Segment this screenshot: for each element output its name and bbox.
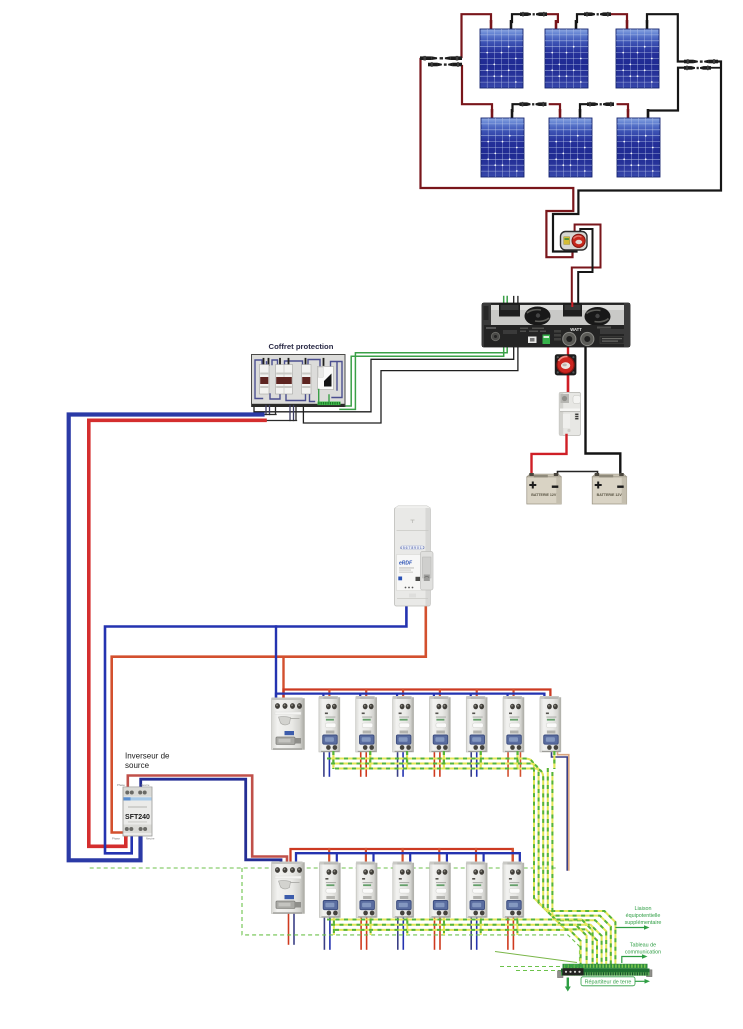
- svg-text:source: source: [125, 761, 150, 770]
- svg-text:4 5 6 7 8 9 0 1 2: 4 5 6 7 8 9 0 1 2: [400, 546, 425, 550]
- svg-text:Tableau de: Tableau de: [630, 943, 656, 949]
- svg-text:Coffret protection: Coffret protection: [269, 342, 334, 351]
- svg-text:supplémentaire: supplémentaire: [625, 920, 662, 926]
- svg-text:Répartiteur de terre: Répartiteur de terre: [585, 980, 632, 986]
- svg-text:Neutre: Neutre: [146, 837, 155, 841]
- svg-text:Neutre: Neutre: [141, 783, 150, 787]
- svg-text:Phase: Phase: [117, 783, 125, 787]
- svg-text:BATTERIE 12V: BATTERIE 12V: [531, 493, 557, 497]
- svg-text:équipotentielle: équipotentielle: [626, 913, 661, 919]
- svg-text:Inverseur de: Inverseur de: [125, 752, 170, 761]
- svg-text:WATT: WATT: [570, 327, 582, 332]
- svg-text:communication: communication: [625, 950, 661, 956]
- svg-text:SFT240: SFT240: [125, 814, 150, 821]
- svg-text:Liaison: Liaison: [634, 906, 651, 912]
- svg-text:BATTERIE 12V: BATTERIE 12V: [597, 493, 623, 497]
- svg-text:Phase: Phase: [112, 837, 120, 841]
- svg-text:eRDF: eRDF: [399, 561, 413, 567]
